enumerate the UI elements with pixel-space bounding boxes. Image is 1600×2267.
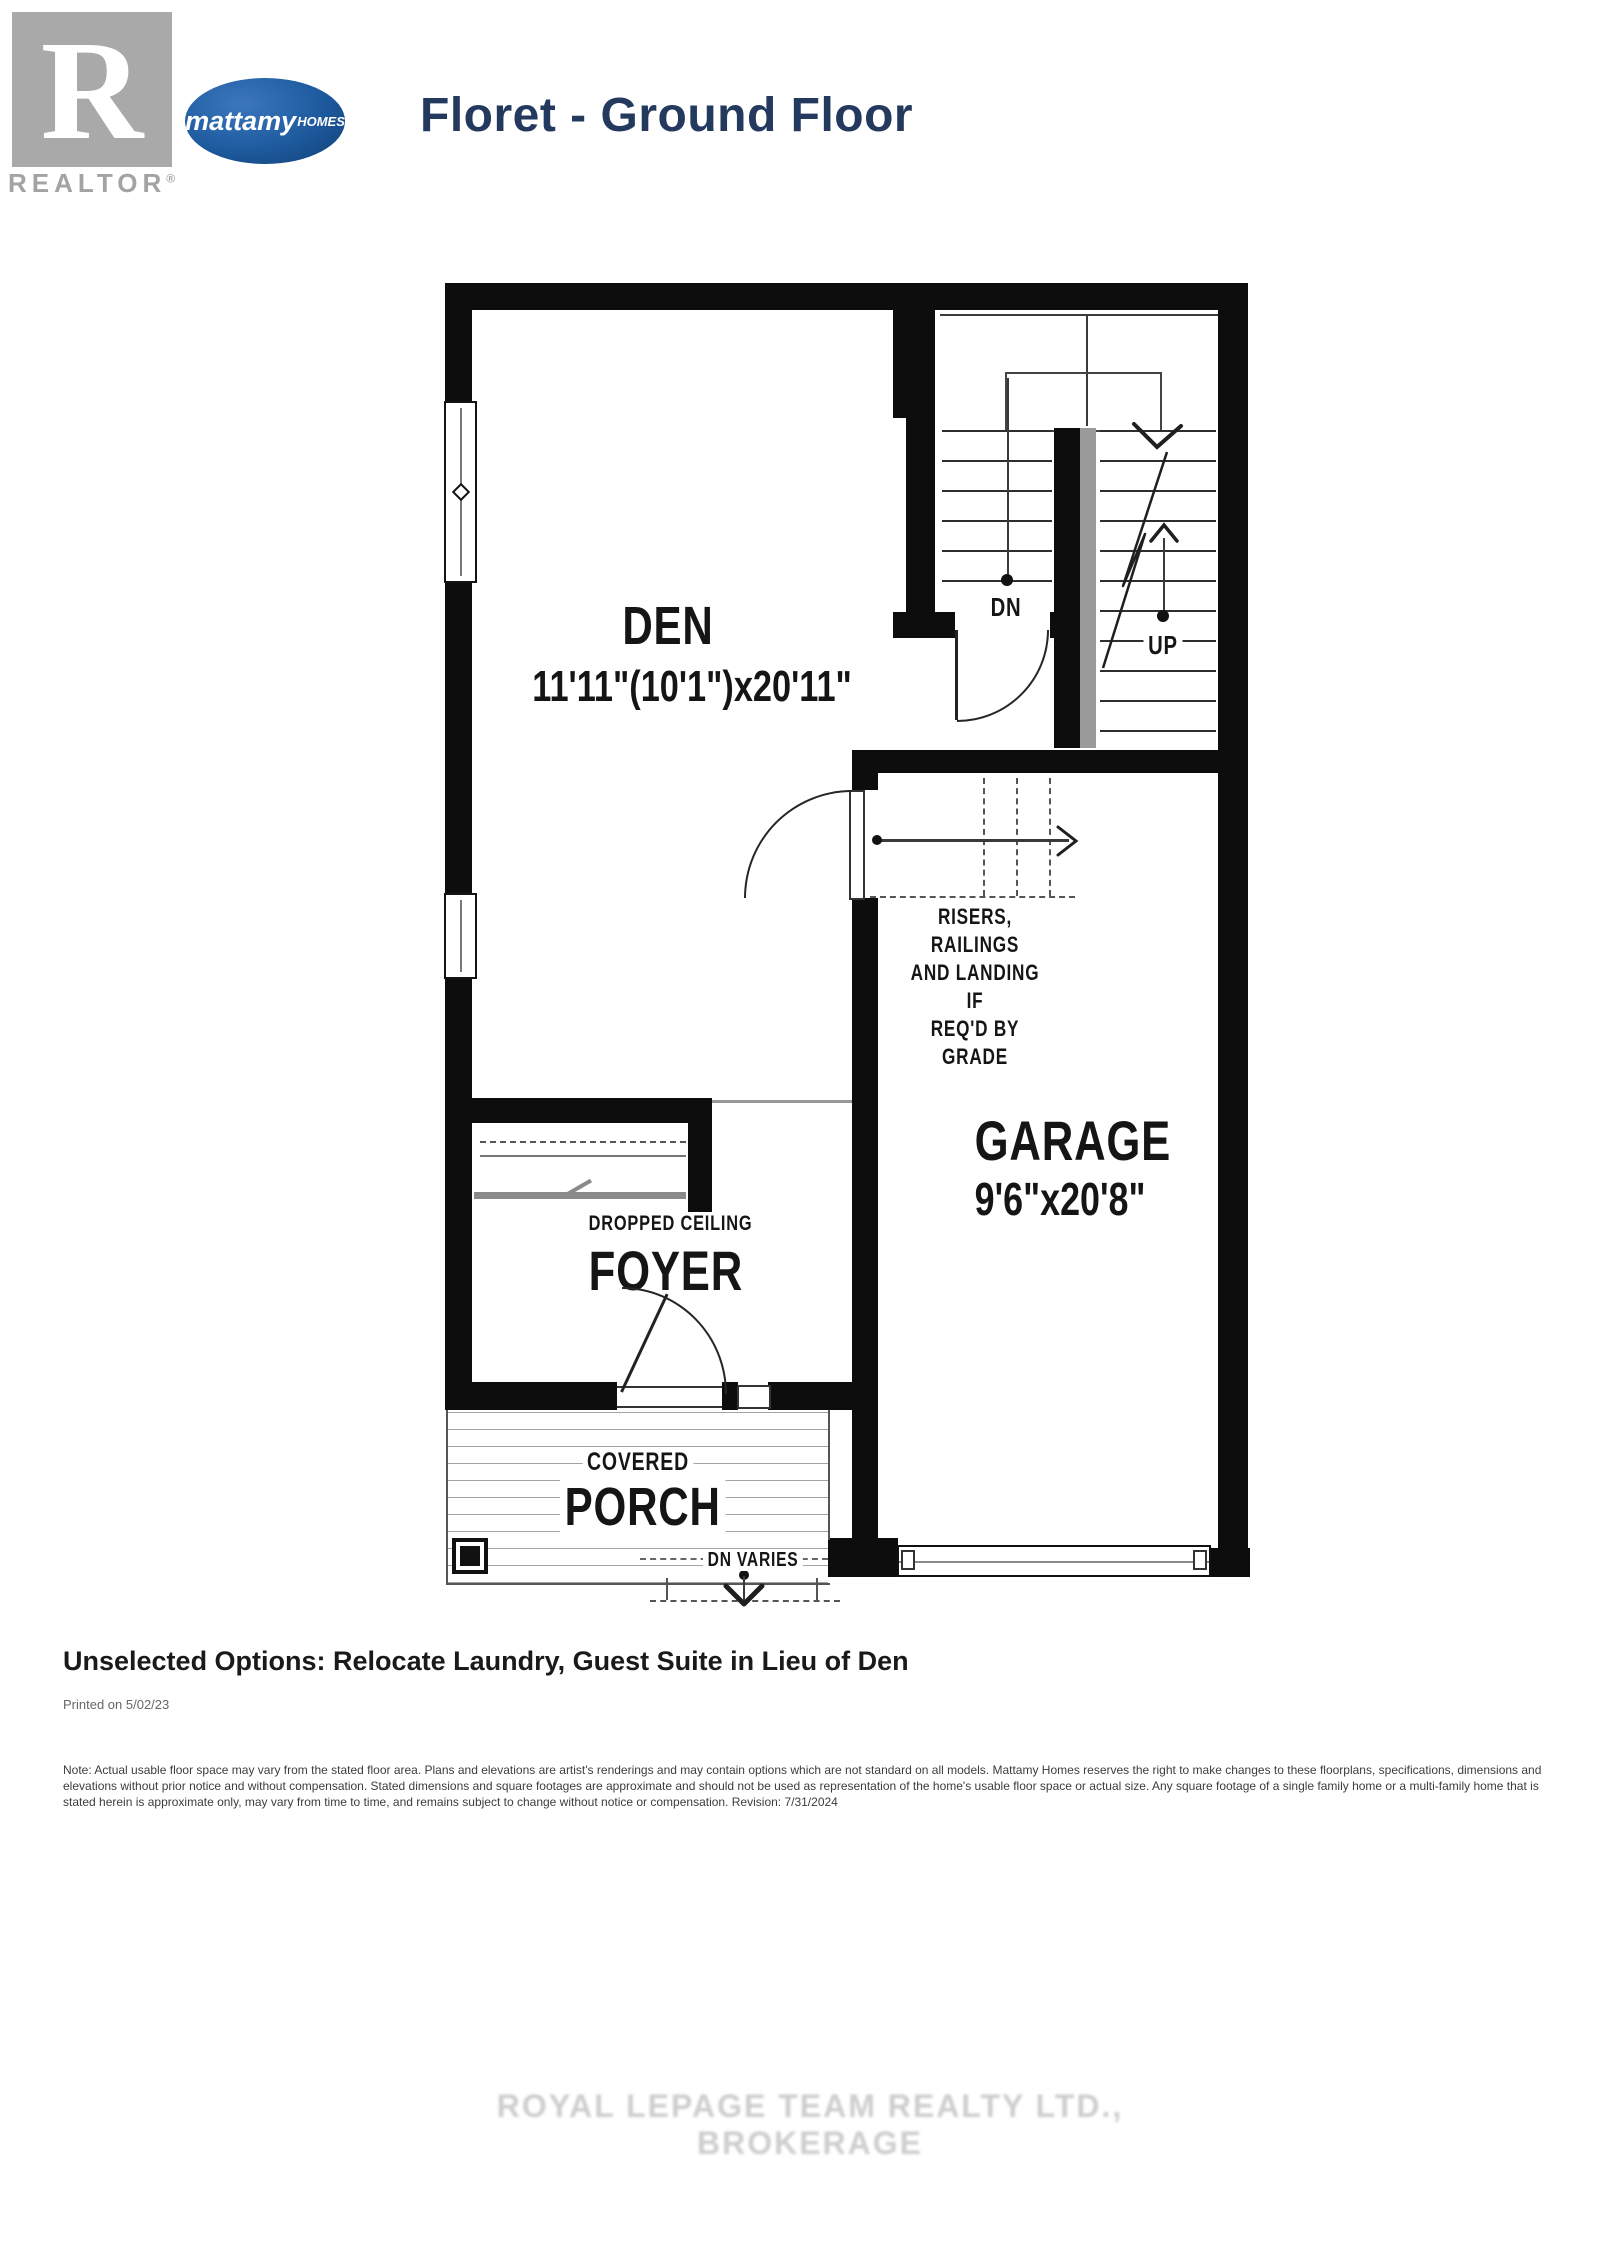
stoop-tick-left (666, 1578, 668, 1600)
window-mullion (451, 483, 469, 501)
den-label: DEN (590, 595, 746, 657)
stair-tread (1100, 490, 1216, 492)
up-arrow-dot (1157, 610, 1169, 622)
dn-label: DN (983, 592, 1030, 623)
wall-den-stair-lower (906, 418, 935, 614)
wall-garage-left-lower (852, 898, 878, 1552)
wall-porch-garage-corner (828, 1538, 898, 1577)
closet-shelf-line (480, 1155, 686, 1157)
closet-shelf-bar (474, 1192, 686, 1199)
dn-arrow-dot (1001, 574, 1013, 586)
stair-tread (942, 430, 1052, 432)
plan-annotation-arrows (0, 0, 1600, 2267)
window-den-lower (444, 893, 477, 979)
dropped-ceiling-label: DROPPED CEILING (584, 1212, 740, 1236)
garage-door (897, 1545, 1211, 1577)
riser-dashed-line (983, 778, 985, 896)
wall-front-right (768, 1382, 852, 1410)
front-door-sidelight (737, 1385, 771, 1409)
wall-closet-top (472, 1098, 712, 1123)
stair-landing-outline (1005, 372, 1162, 432)
page: R REALTOR® mattamyHOMES Floret - Ground … (0, 0, 1600, 2267)
wall-garage-left-upper (852, 750, 878, 790)
brokerage-watermark: ROYAL LEPAGE TEAM REALTY LTD., BROKERAGE (420, 2088, 1200, 2162)
den-dimensions: 11'11"(10'1")x20'11" (528, 662, 809, 712)
up-arrow-line (1163, 538, 1165, 616)
up-label: UP (1140, 630, 1187, 661)
riser-dashed-line (1016, 778, 1018, 896)
risers-note: RISERS, RAILINGS AND LANDING IF REQ'D BY… (901, 903, 1049, 1071)
unselected-options-text: Unselected Options: Relocate Laundry, Gu… (63, 1646, 909, 1677)
riser-dashed-baseline (870, 896, 1075, 898)
stair-tread (1100, 580, 1216, 582)
stair-tread (942, 580, 1052, 582)
porch-covered-label: COVERED (576, 1448, 701, 1477)
stair-door-swing-arc (957, 630, 1049, 722)
porch-deck-line (448, 1446, 828, 1447)
wall-den-stair-upper (893, 310, 935, 418)
printed-on-text: Printed on 5/02/23 (63, 1697, 169, 1712)
stair-tread (1100, 460, 1216, 462)
stair-divider-rail (1080, 428, 1096, 748)
foyer-label: FOYER (584, 1238, 740, 1303)
riser-arrow-dot (872, 835, 882, 845)
stair-divider-wall (1054, 428, 1080, 748)
realtor-wordmark: REALTOR® (8, 168, 188, 199)
porch-step-arrow-line (743, 1576, 745, 1600)
porch-label: PORCH (560, 1476, 716, 1538)
window-glazing-line (460, 900, 462, 972)
stair-tread (942, 460, 1052, 462)
riser-dashed-line (1049, 778, 1051, 896)
mattamy-logo-suffix: HOMES (297, 114, 345, 129)
porch-edge-bottom (446, 1583, 830, 1585)
wall-garage-door-stub (1205, 1548, 1250, 1577)
stoop-tick-right (816, 1578, 818, 1600)
stair-tread (1100, 670, 1216, 672)
stair-tread (1100, 700, 1216, 702)
stair-tread (942, 550, 1052, 552)
stair-tread (942, 490, 1052, 492)
wall-stair-bottom (893, 612, 955, 638)
stair-tread (1100, 730, 1216, 732)
disclaimer-text: Note: Actual usable floor space may vary… (63, 1762, 1543, 1810)
closet-rod (480, 1141, 686, 1143)
stair-tread (942, 520, 1052, 522)
porch-edge-left (446, 1410, 448, 1585)
stair-tread (1100, 550, 1216, 552)
wall-right (1218, 283, 1248, 1577)
garage-dimensions: 9'6"x20'8" (970, 1172, 1126, 1226)
wall-front-left (445, 1382, 617, 1410)
mattamy-logo-name: mattamy (185, 106, 296, 137)
garage-door-end-cap (1193, 1550, 1207, 1570)
page-title: Floret - Ground Floor (420, 88, 913, 143)
garage-label: GARAGE (970, 1108, 1126, 1173)
garage-door-panel-line (899, 1561, 1209, 1563)
stair-tread (1100, 430, 1216, 432)
porch-deck-line (448, 1412, 828, 1413)
wall-closet-right (688, 1098, 712, 1212)
wall-garage-top (852, 750, 1218, 773)
wall-top (445, 283, 1248, 310)
dn-arrow-line (1007, 378, 1009, 580)
stair-landing-top-line (940, 314, 1218, 316)
riser-arrow-line (877, 839, 1069, 842)
realtor-logo: R (12, 12, 172, 167)
realtor-r-glyph: R (41, 19, 144, 161)
porch-post (452, 1538, 488, 1574)
garage-entry-door-swing-arc (744, 790, 852, 898)
dn-varies-label: DN VARIES (703, 1549, 781, 1572)
stair-tread (1100, 520, 1216, 522)
porch-edge-right (828, 1410, 830, 1540)
mattamy-logo: mattamyHOMES (185, 78, 345, 164)
front-door-swing-arc (622, 1287, 727, 1394)
window-den-upper (444, 401, 477, 583)
stoop-dashed-bottom (650, 1600, 840, 1602)
garage-door-end-cap (901, 1550, 915, 1570)
dropped-ceiling-line (712, 1100, 852, 1103)
porch-deck-line (448, 1429, 828, 1430)
